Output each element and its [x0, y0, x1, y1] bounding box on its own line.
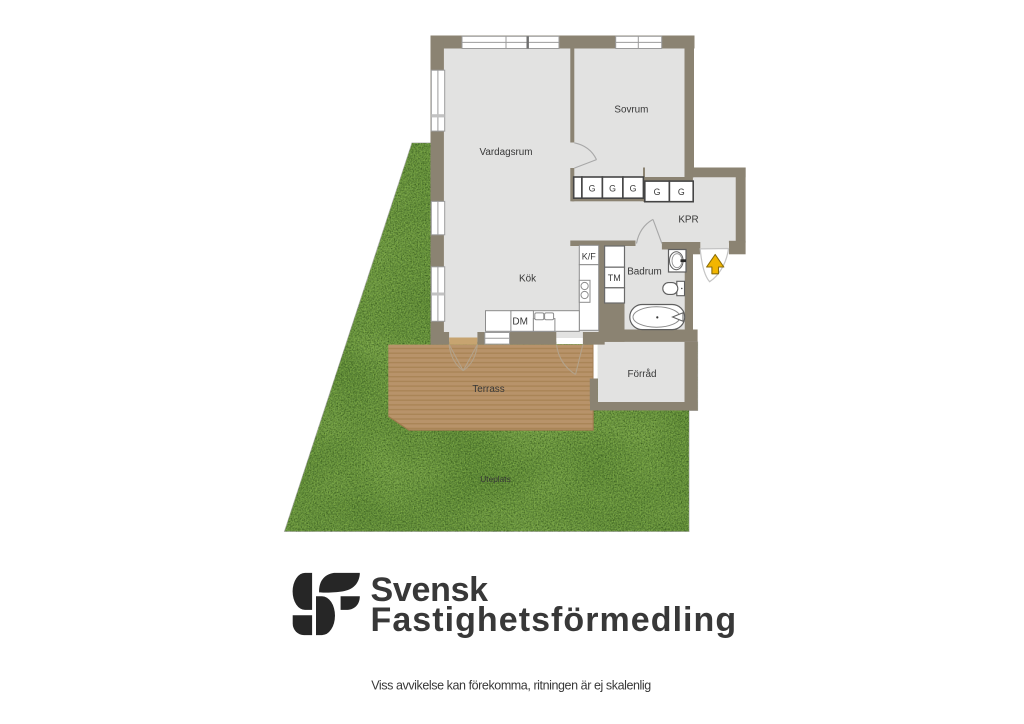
svg-text:G: G [678, 187, 685, 197]
svg-text:G: G [609, 184, 616, 194]
svg-text:Förråd: Förråd [627, 369, 656, 380]
svg-text:K/F: K/F [582, 251, 597, 261]
svg-text:Kök: Kök [519, 273, 536, 284]
svg-text:Vardagsrum: Vardagsrum [479, 147, 532, 158]
svg-text:G: G [589, 184, 596, 194]
svg-text:TM: TM [608, 273, 621, 283]
svg-text:Sovrum: Sovrum [614, 104, 648, 115]
svg-text:G: G [630, 184, 637, 194]
svg-text:DM: DM [512, 317, 528, 328]
svg-text:Viss avvikelse kan förekomma,: Viss avvikelse kan förekomma, ritningen … [371, 679, 651, 693]
svg-text:G: G [654, 187, 661, 197]
svg-text:Badrum: Badrum [627, 266, 662, 277]
svg-text:Fastighetsförmedling: Fastighetsförmedling [371, 601, 738, 639]
svg-text:Uteplats: Uteplats [480, 474, 510, 484]
svg-text:Terrass: Terrass [472, 384, 504, 395]
svg-text:KPR: KPR [678, 214, 698, 225]
